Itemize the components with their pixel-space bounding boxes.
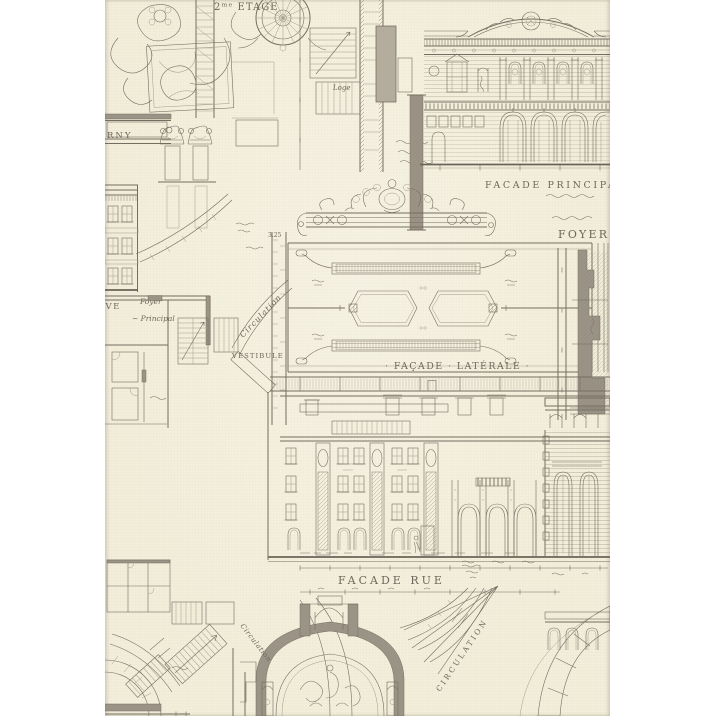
circulation-ramp-plan: Circulation: [231, 280, 292, 393]
crown-ornament-study: [297, 180, 495, 236]
side-facade-window-grid: [285, 448, 420, 520]
side-facade-arcade: [452, 478, 536, 556]
caption-vestibule: VESTIBULE: [231, 352, 284, 360]
cut-text-ve: VE: [105, 302, 121, 312]
foyer-script-label: Foyer: [139, 297, 162, 306]
loge-script-label: Loge: [332, 84, 351, 92]
caption-foyer: FOYER: [558, 228, 609, 241]
lateral-facade-plan: · FAÇADE · LATÉRALE ·: [288, 243, 608, 372]
garden-parterre-plan: [111, 0, 278, 146]
parterre-bed: [146, 42, 233, 112]
lattice-panel: [236, 120, 278, 146]
interior-ornament-sketch: [300, 665, 360, 706]
annotation-squiggles: [462, 565, 480, 578]
opera-main-facade-elevation: [420, 12, 610, 171]
circulation-arc-label: CIRCULATION: [434, 617, 489, 693]
side-facade-arched-windows: [288, 528, 420, 550]
etage-label: 2ᵐᵉ ETAGE: [214, 2, 278, 13]
dimension-3-25: 3.25: [268, 232, 282, 239]
circulation-script-label: Circulation: [238, 293, 284, 340]
cut-text-rny: RNY: [107, 131, 132, 141]
fabric-swatch-photo: FACADE PRINCIPALE: [105, 0, 610, 716]
bottom-left-stair-plans: [105, 560, 234, 716]
caption-facade-laterale: · FAÇADE · LATÉRALE ·: [385, 360, 530, 372]
left-building-elevation-fragment: [105, 185, 138, 292]
circulation-script-label-2: Circulation: [238, 622, 273, 663]
architectural-toile-pattern: FACADE PRINCIPALE: [105, 0, 610, 716]
page-background: FACADE PRINCIPALE: [0, 0, 716, 716]
caption-facade-principale: FACADE PRINCIPALE: [485, 180, 610, 191]
right-corner-pavilion: [543, 430, 610, 556]
wall-section-bar: [407, 95, 426, 230]
opera-side-facade-elevation: [268, 392, 610, 575]
principal-script-label: ~ Principal: [132, 314, 175, 323]
trellis-walk: [196, 0, 214, 118]
rotunda-cross-section: Circulation: [233, 596, 404, 716]
dome-plan-fragment: [520, 606, 610, 716]
column-capitals-study: [158, 126, 216, 228]
street-section-drawing: CIRCULATION: [300, 586, 560, 716]
long-elevation-strip: [270, 377, 610, 391]
caption-facade-rue: FACADE RUE: [338, 574, 445, 587]
curved-ramp-plan: [136, 194, 263, 262]
